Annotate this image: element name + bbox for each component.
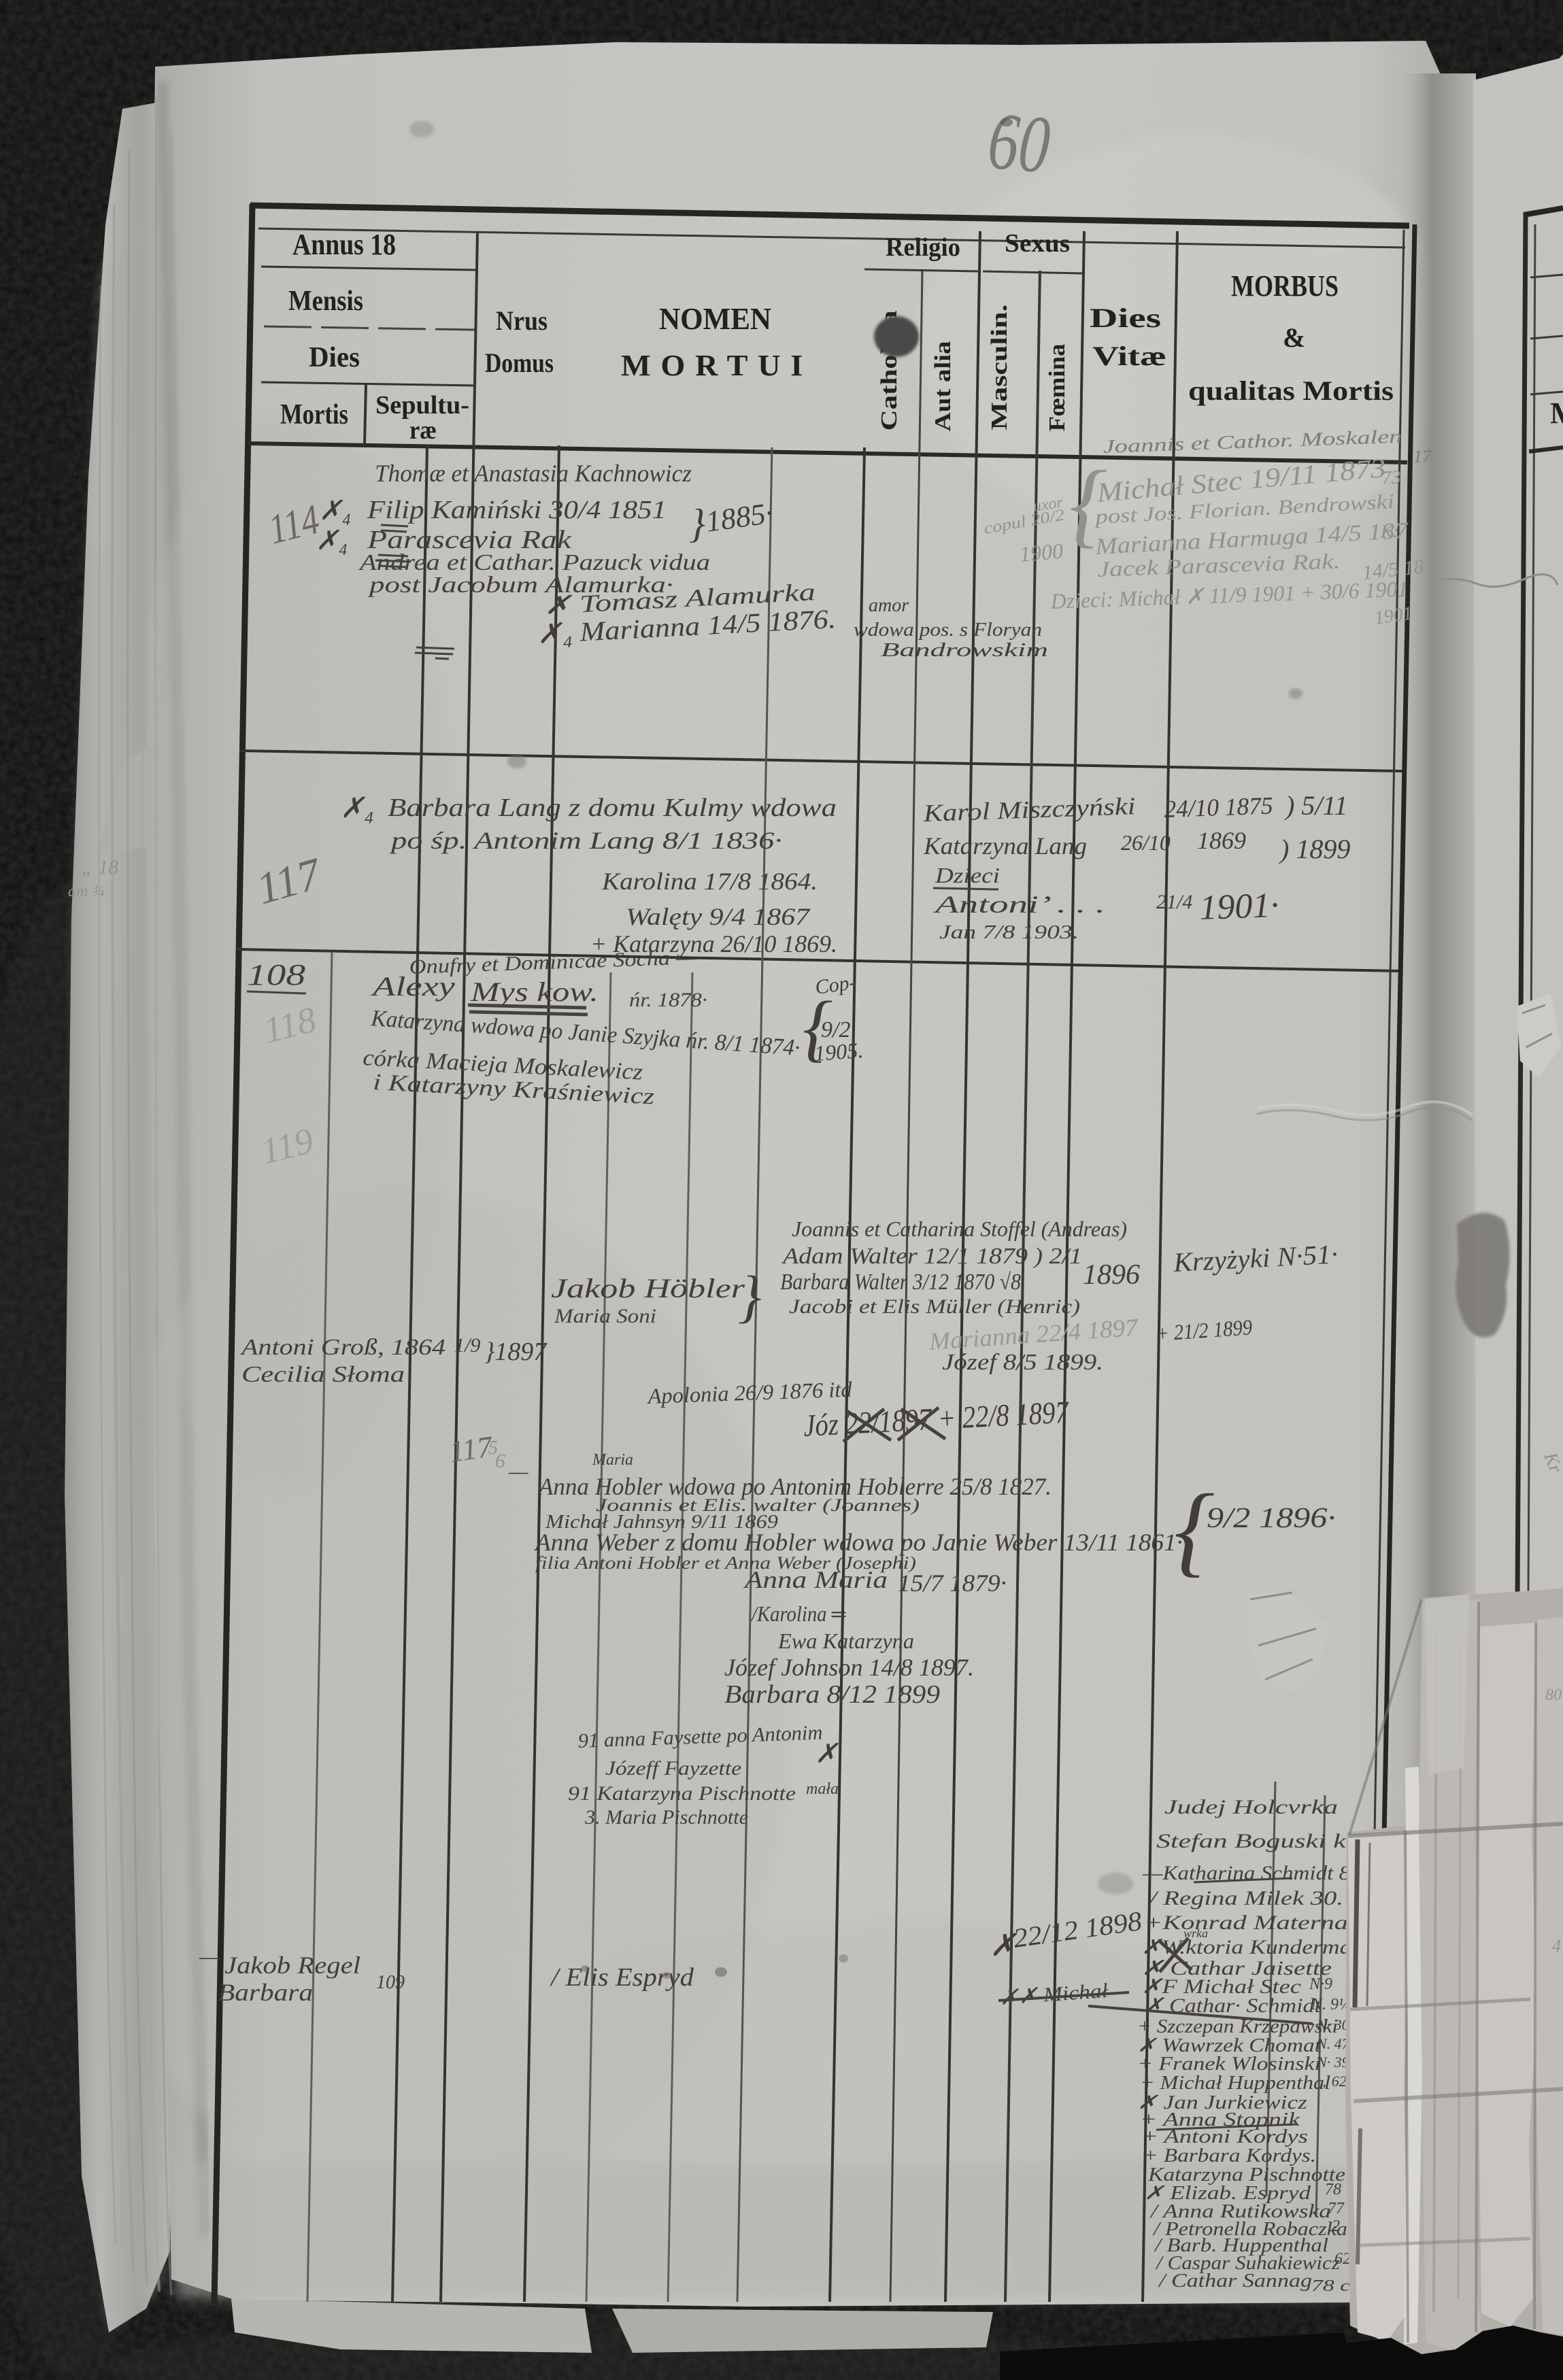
svg-text:ræ: ræ (409, 416, 437, 445)
svg-text:/ Regina Milek 30.: / Regina Milek 30. (1147, 1887, 1343, 1909)
svg-text:Filip Kamiński 30/4 1851: Filip Kamiński 30/4 1851 (367, 496, 667, 524)
svg-text:1900: 1900 (1018, 539, 1064, 566)
svg-text:—Katharina Schmidt 81.: —Katharina Schmidt 81. (1142, 1862, 1367, 1884)
svg-text:Barbara Lang z domu Kulmy: Barbara Lang z domu Kulmy wdowa (388, 794, 837, 822)
svg-text:Vitæ: Vitæ (1092, 341, 1166, 371)
svg-text:—: — (199, 1944, 220, 1969)
svg-text:NOMEN: NOMEN (659, 301, 771, 336)
svg-text:Barbara: Barbara (218, 1979, 313, 2006)
svg-text:) 5/11: ) 5/11 (1284, 790, 1347, 821)
svg-text:Jakob Höbler: Jakob Höbler (551, 1273, 745, 1304)
svg-text:Sexus: Sexus (1005, 229, 1070, 258)
svg-text:3. Maria Pischnotte: 3. Maria Pischnotte (584, 1806, 748, 1829)
svg-text:Fœmina: Fœmina (1045, 344, 1070, 432)
svg-text:Katarzyna Lang: Katarzyna Lang (923, 832, 1087, 860)
svg-text:Anna Maria: Anna Maria (743, 1566, 888, 1593)
svg-text:Józeff Fayzette: Józeff Fayzette (605, 1757, 741, 1780)
svg-text:Aut alia: Aut alia (930, 341, 956, 432)
svg-text:Barbara Walter 3/12 1870 √8: Barbara Walter 3/12 1870 √8 (780, 1270, 1021, 1295)
svg-text:ńr. 1878·: ńr. 1878· (629, 989, 707, 1011)
svg-text:Judej Holcvrka: Judej Holcvrka (1164, 1796, 1338, 1818)
svg-text:2: 2 (1332, 2217, 1340, 2235)
svg-text:M: M (1550, 396, 1563, 430)
svg-text:24/10 1875: 24/10 1875 (1164, 792, 1273, 823)
svg-text:po śp. Antonim Lang 8/1: po śp. Antonim Lang 8/1 1836· (388, 827, 782, 854)
svg-text:MORBUS: MORBUS (1231, 269, 1339, 303)
svg-text:{: { (1069, 452, 1107, 557)
svg-text:26/10: 26/10 (1121, 830, 1171, 855)
svg-text:Walęty 9/4 1867: Walęty 9/4 1867 (626, 903, 811, 930)
svg-text:Maria: Maria (592, 1451, 633, 1469)
svg-text:✗₄: ✗₄ (319, 495, 351, 526)
svg-text:80: 80 (1545, 1686, 1562, 1704)
svg-text:amor: amor (869, 595, 909, 616)
svg-text:1869: 1869 (1197, 827, 1246, 854)
svg-text:Anna Weber z domu Hobler w: Anna Weber z domu Hobler wdowa po Janie … (534, 1529, 1183, 1556)
svg-text:62: 62 (1334, 2250, 1351, 2268)
svg-text:MORTUI: MORTUI (621, 349, 813, 382)
svg-text:77: 77 (1328, 2200, 1345, 2217)
svg-text:✗: ✗ (815, 1738, 839, 1769)
svg-text:Stefan Boguski kr: Stefan Boguski kr (1156, 1830, 1357, 1852)
svg-text:1905.: 1905. (813, 1038, 864, 1066)
svg-text:) 1899: ) 1899 (1279, 834, 1350, 864)
svg-text:/ Cathar Sannag: / Cathar Sannag (1158, 2271, 1312, 2292)
svg-text:/ Elis Espryd: / Elis Espryd (550, 1963, 694, 1992)
svg-text:109: 109 (376, 1972, 405, 1993)
svg-text:/Karolina ═: /Karolina ═ (750, 1601, 845, 1626)
svg-text:Antoni Groß, 1864: Antoni Groß, 1864 (240, 1335, 446, 1360)
svg-text:1/9: 1/9 (454, 1334, 480, 1357)
svg-text:4: 4 (1552, 1936, 1561, 1956)
svg-text:N. 9¼: N. 9¼ (1311, 1996, 1351, 2013)
svg-text:+ Michał Huppenthal: + Michał Huppenthal (1140, 2073, 1330, 2094)
svg-text:N· 39: N· 39 (1316, 2054, 1349, 2071)
svg-text:am ¾: am ¾ (68, 883, 104, 900)
svg-text:N· 30: N· 30 (1316, 2016, 1349, 2033)
svg-text:Jacobi et Elis Müller (Henric): Jacobi et Elis Müller (Henric) (789, 1295, 1080, 1318)
svg-text:Masculin.: Masculin. (987, 305, 1012, 430)
svg-text:1896: 1896 (1083, 1259, 1140, 1291)
svg-text:Jan 7/8 1903.: Jan 7/8 1903. (939, 922, 1079, 943)
svg-text:Józef Johnson 14/8 1897.: Józef Johnson 14/8 1897. (724, 1654, 974, 1681)
svg-text:+Konrad Materna: +Konrad Materna (1144, 1911, 1348, 1934)
svg-text:Andrea et Cathar. Pazuck vidua: Andrea et Cathar. Pazuck vidua (358, 550, 710, 575)
svg-text:K:: K: (1380, 522, 1398, 541)
svg-text:17: 17 (1413, 447, 1432, 466)
svg-text:}: } (689, 501, 705, 546)
svg-text:&: & (1283, 322, 1305, 353)
svg-text:6: 6 (495, 1450, 505, 1472)
svg-text:+ Szczepan Krzepawski: + Szczepan Krzepawski (1137, 2016, 1338, 2037)
svg-text:Maria Soni: Maria Soni (554, 1305, 656, 1327)
svg-text:+ Barbara Kordys.: + Barbara Kordys. (1143, 2145, 1316, 2166)
svg-text:60: 60 (985, 95, 1054, 190)
svg-text:+ Franek Wlosinski: + Franek Wlosinski (1137, 2054, 1321, 2075)
svg-text:91 Katarzyna Pischnotte: 91 Katarzyna Pischnotte (568, 1782, 796, 1805)
svg-text:—: — (508, 1459, 528, 1483)
svg-text:Alexy: Alexy (370, 971, 455, 1002)
svg-text:78: 78 (1325, 2181, 1341, 2198)
svg-text:Domus: Domus (485, 347, 554, 378)
svg-text:108: 108 (247, 958, 305, 991)
svg-text:}: } (738, 1263, 761, 1329)
svg-text:Nrus: Nrus (496, 305, 548, 336)
svg-text:wdowa pos. s Floryan: wdowa pos. s Floryan (854, 619, 1042, 641)
svg-text:Dies: Dies (1090, 303, 1161, 333)
svg-text:✗₄: ✗₄ (340, 793, 374, 824)
svg-text:Sepultu-: Sepultu- (375, 391, 469, 420)
svg-text:Barbara 8/12 1899: Barbara 8/12 1899 (724, 1680, 940, 1709)
svg-text:Mensis: Mensis (288, 286, 363, 317)
svg-text:„ 62: „ 62 (1320, 2073, 1347, 2090)
svg-text:1901·: 1901· (1198, 886, 1279, 928)
svg-text:Annus 18: Annus 18 (292, 228, 396, 261)
svg-text:Dzieci: Dzieci (935, 863, 1000, 887)
svg-text:9/2 1896·: 9/2 1896· (1207, 1503, 1336, 1534)
svg-text:„ 18: „ 18 (82, 856, 118, 879)
svg-text:Religio: Religio (886, 233, 960, 262)
svg-text:}1897: }1897 (484, 1338, 548, 1366)
svg-text:Dies: Dies (309, 342, 360, 373)
svg-text:N·9: N·9 (1309, 1975, 1332, 1993)
svg-text:Cecilia Słoma: Cecilia Słoma (241, 1362, 405, 1387)
svg-text:Adam Walter 12/1 1879 ) 2/1: Adam Walter 12/1 1879 ) 2/1 (781, 1244, 1082, 1269)
svg-text:N. 47: N. 47 (1316, 2035, 1350, 2052)
svg-text:21/4: 21/4 (1156, 891, 1192, 913)
svg-text:15/7 1879·: 15/7 1879· (898, 1569, 1007, 1597)
svg-text:Ewa Katarzyna: Ewa Katarzyna (777, 1629, 914, 1653)
svg-text:mała: mała (806, 1780, 839, 1798)
svg-text:qualitas Mortis: qualitas Mortis (1188, 375, 1394, 406)
svg-text:Mortis: Mortis (280, 399, 348, 430)
svg-text:Karolina 17/8 1864.: Karolina 17/8 1864. (601, 868, 818, 895)
svg-text:Bandrowskim: Bandrowskim (881, 640, 1048, 661)
svg-text:Joannis et Catharina Stoffel (: Joannis et Catharina Stoffel (Andreas) (792, 1217, 1127, 1241)
svg-text:Mys kow.: Mys kow. (470, 976, 599, 1007)
svg-text:73: 73 (1381, 467, 1402, 489)
svg-text:Józef 8/5 1899.: Józef 8/5 1899. (942, 1350, 1103, 1375)
svg-text:Jakob Regel: Jakob Regel (224, 1952, 360, 1979)
svg-text:Thomæ et Anastasia Kachnowicz: Thomæ et Anastasia Kachnowicz (375, 460, 692, 487)
svg-text:Antoni’ . . .: Antoni’ . . . (933, 891, 1105, 918)
